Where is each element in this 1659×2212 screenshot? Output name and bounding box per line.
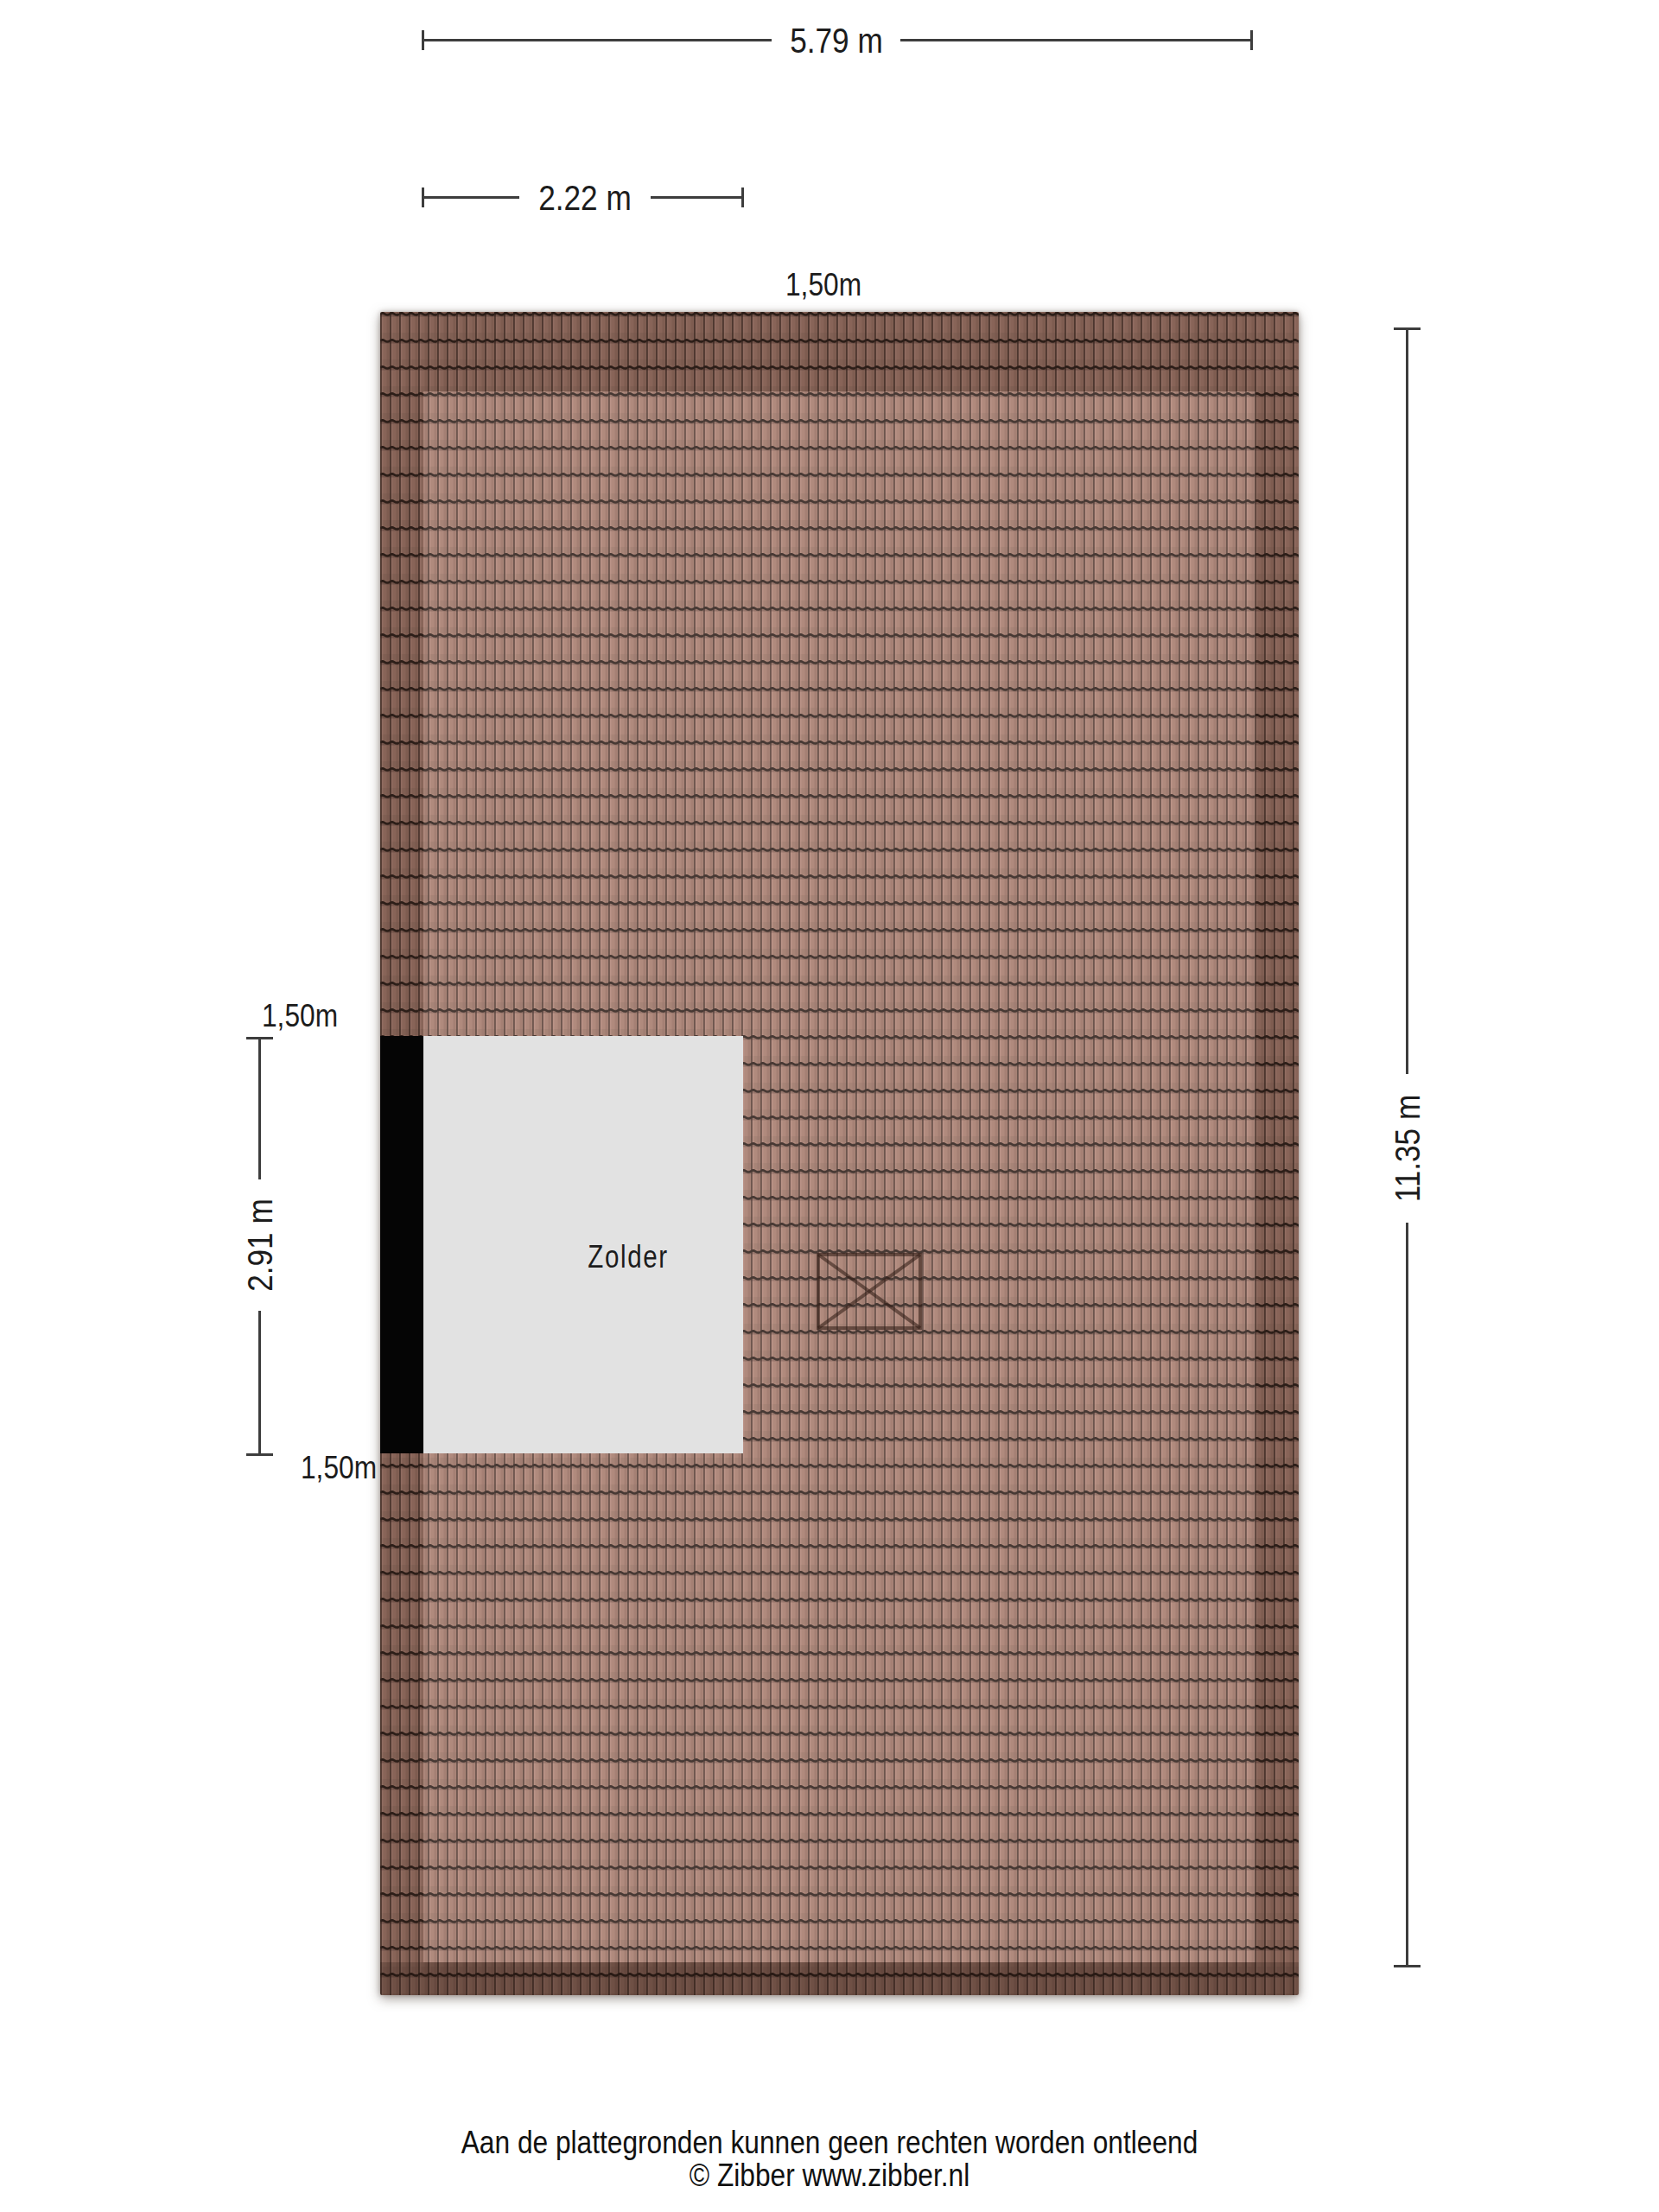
dimension-line <box>423 196 519 199</box>
footer-copyright: © Zibber www.zibber.nl <box>690 2160 969 2191</box>
headroom-label-left-top: 1,50m <box>262 1001 338 1032</box>
roof-right-band <box>1255 391 1299 1962</box>
dimension-tick <box>1394 1965 1421 1967</box>
dimension-tick <box>246 1037 273 1039</box>
roof-eave-band <box>380 1962 1299 1995</box>
dimension-line <box>258 1038 261 1179</box>
headroom-label-left-bottom: 1,50m <box>301 1452 377 1484</box>
dimension-line <box>651 196 743 199</box>
room-zolder <box>423 1036 743 1453</box>
dimension-line <box>423 39 772 41</box>
dimension-tick <box>422 188 424 207</box>
dimension-tick <box>1394 327 1421 330</box>
dimension-tick <box>422 30 424 50</box>
dimension-label-room-width: 2.22 m <box>538 181 632 215</box>
floorplan-page: 5.79 m 2.22 m 1,50m <box>0 0 1659 2212</box>
dimension-tick <box>246 1453 273 1456</box>
dimension-label-total-height: 11.35 m <box>1390 1095 1425 1203</box>
dimension-label-room-depth: 2.91 m <box>243 1198 277 1292</box>
dimension-tick <box>741 188 744 207</box>
room-label: Zolder <box>588 1242 669 1273</box>
dimension-line <box>1406 1223 1408 1966</box>
roof-ridge-band <box>380 312 1299 391</box>
attic-wall-segment <box>380 1036 423 1453</box>
dimension-line <box>258 1311 261 1455</box>
footer-disclaimer: Aan de plattegronden kunnen geen rechten… <box>461 2127 1198 2158</box>
dimension-line <box>1406 328 1408 1074</box>
dimension-tick <box>1250 30 1253 50</box>
dimension-label-top-width: 5.79 m <box>790 23 883 58</box>
headroom-label-top: 1,50m <box>785 270 861 301</box>
dimension-line <box>900 39 1252 41</box>
